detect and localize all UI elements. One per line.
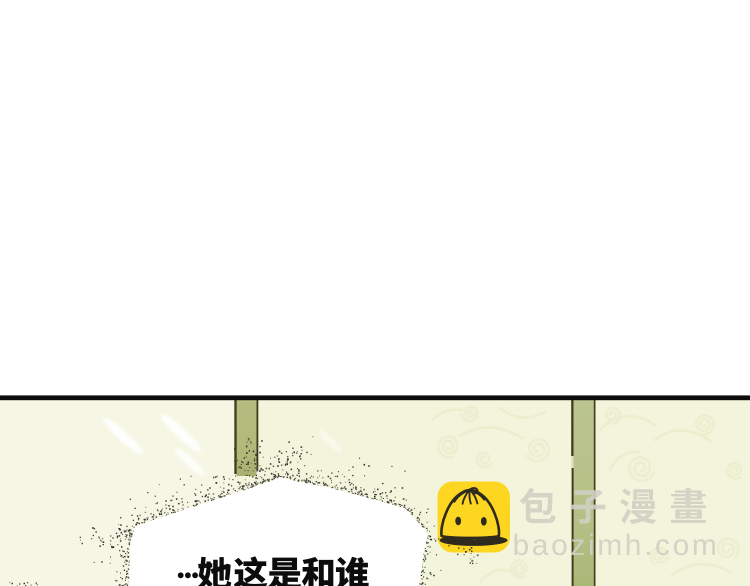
svg-text:baozimh.com: baozimh.com bbox=[513, 529, 720, 562]
